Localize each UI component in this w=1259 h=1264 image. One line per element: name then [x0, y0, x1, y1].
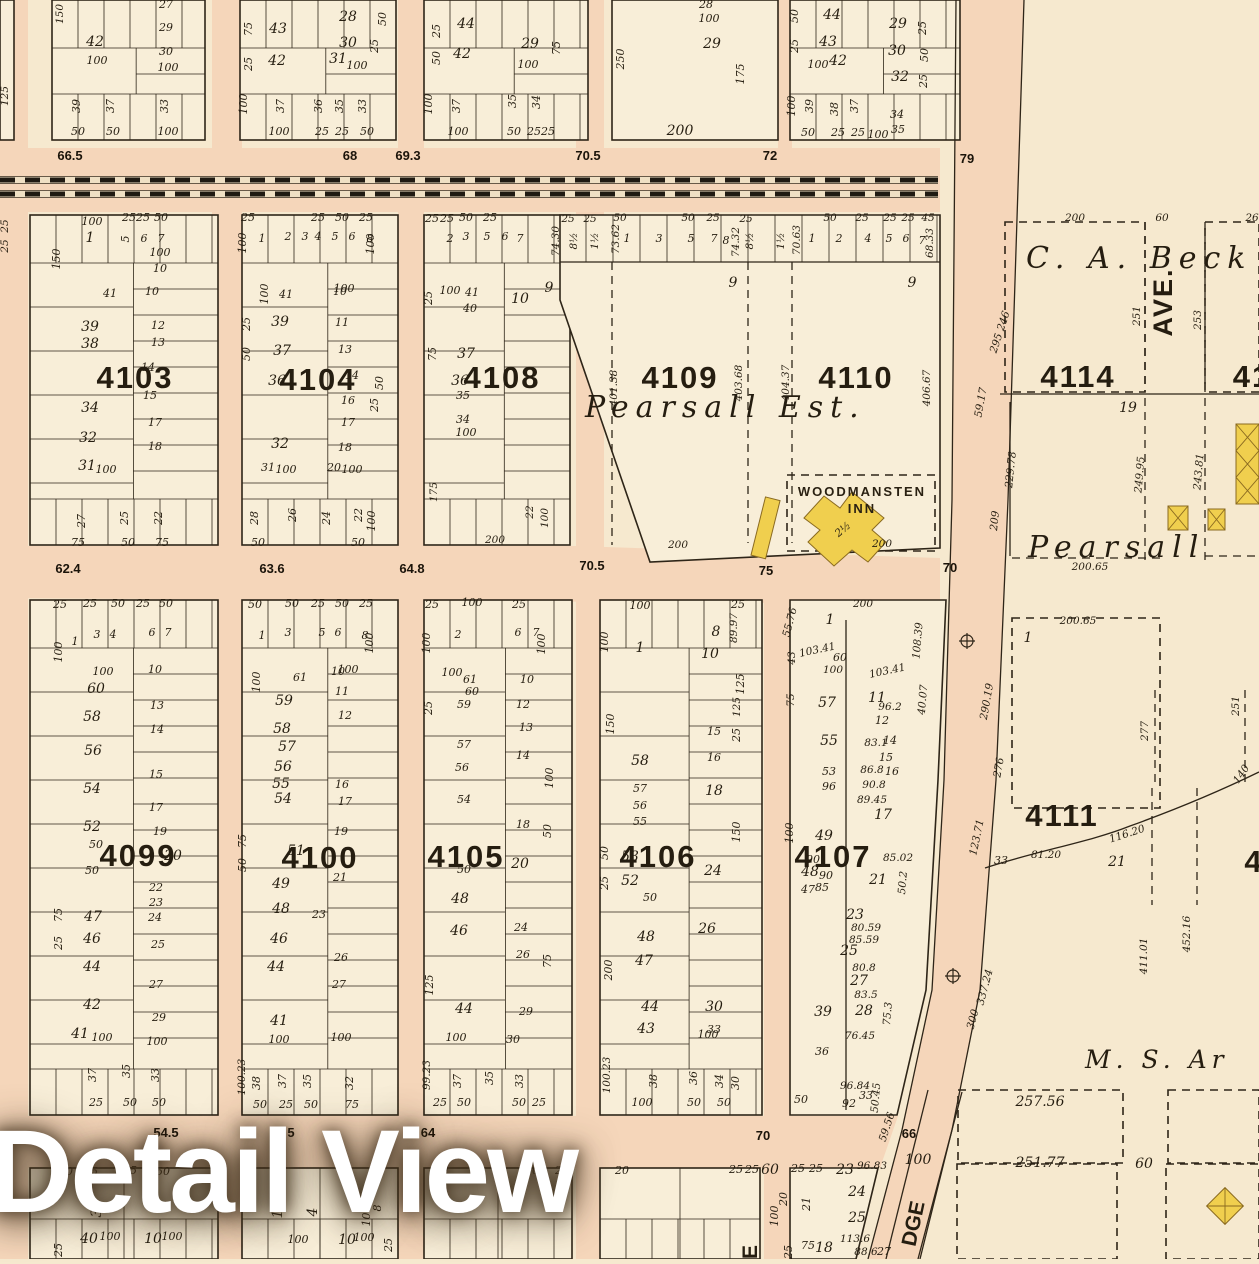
lot-number-label: 28 [248, 511, 261, 526]
lot-number-label: 25 [150, 938, 165, 951]
lot-number-label: 20 [326, 461, 341, 474]
lot-number-label: 16 [341, 394, 355, 407]
lot-number-label: 50 [111, 597, 125, 610]
lot-number-label: 50 [71, 125, 85, 138]
lot-number-label: 42 [267, 53, 286, 69]
lot-number-label: 23 [148, 896, 163, 909]
lot-number-label: 36 [312, 99, 325, 113]
lot-number-label: 31 [329, 51, 347, 67]
lot-number-label: 150 [50, 249, 63, 270]
measurement-label: 83.5 [854, 989, 878, 1001]
measurement-label: 50 [681, 212, 695, 224]
lot-number-label: 27 [849, 973, 868, 989]
street-measure-label: 69.3 [395, 148, 420, 163]
lot-number-label: 25 [782, 1245, 795, 1259]
measurement-label: 43 [786, 651, 798, 666]
lot-number-label: 29 [520, 36, 539, 52]
lot-number-label: 28 [338, 9, 357, 25]
lot-number-label: 38 [250, 1076, 263, 1090]
street-measure-label: 66 [902, 1126, 916, 1141]
lot-number-label: 55 [272, 776, 290, 792]
lot-number-label: 25 [242, 57, 255, 72]
lot-number-label: 36 [815, 1045, 829, 1058]
measurement-label: 200.65 [1059, 615, 1097, 627]
lot-number-label: 50 [788, 9, 801, 23]
lot-number-label: 100 [269, 125, 290, 138]
lot-number-label: 100 [448, 125, 469, 138]
lot-number-label: 25 [424, 212, 439, 225]
lot-number-label: 60 [833, 651, 847, 664]
measurement-label: 411.01 [1138, 938, 1150, 976]
lot-number-label: 16 [707, 751, 721, 764]
measurement-label: 8½ [568, 233, 580, 250]
lot-number-label: 50 [459, 211, 473, 224]
lot-number-label: 40 [79, 1231, 98, 1247]
lot-number-label: 54 [274, 791, 292, 807]
lot-number-label: 3 [89, 1208, 105, 1217]
lot-number-label: 5 [688, 232, 695, 245]
lot-number-label: 100 [162, 1230, 183, 1243]
lot-number-label: 37 [86, 1068, 99, 1082]
lot-number-label: 30 [506, 1033, 520, 1046]
lot-number-label: 1 [1024, 630, 1033, 646]
lot-number-label: 44 [82, 959, 101, 975]
lot-number-label: 57 [633, 782, 647, 795]
lot-number-label: 75 [155, 536, 169, 549]
block-number-label: 4114 [1040, 359, 1115, 394]
lot-number-label: 44 [640, 999, 659, 1015]
lot-number-label: 27 [876, 1245, 891, 1258]
lot-number-label: 25 [482, 211, 497, 224]
street-measure-label: 70 [943, 560, 957, 575]
lot-number-label: 10 [145, 285, 159, 298]
lot-number-label: 48 [450, 891, 469, 907]
lot-number-label: 33 [356, 99, 369, 113]
lot-number-label: 49 [814, 828, 833, 844]
lot-number-label: 4 [314, 230, 322, 243]
lot-number-label: 7 [517, 232, 524, 245]
lot-number-label: 32 [271, 436, 289, 452]
lot-number-label: 50 [801, 126, 815, 139]
measurement-label: 406.67 [921, 369, 933, 407]
lot-number-label: 50 [123, 1096, 137, 1109]
measurement-label: 200 [871, 538, 892, 550]
lot-number-label: 100 [422, 94, 435, 115]
lot-number-label: 100 [334, 282, 355, 295]
lot-number-label: 56 [633, 799, 647, 812]
lot-number-label: 60 [431, 1161, 449, 1177]
lot-number-label: 25 [839, 943, 858, 959]
lot-number-label: 38 [647, 1074, 660, 1088]
lot-number-label: 36 [451, 373, 469, 389]
lot-number-label: 10 [153, 262, 167, 275]
lot-number-label: 3 [463, 230, 470, 243]
street-measure-label: 70 [756, 1128, 770, 1143]
lot-number-label: 10 [701, 646, 719, 662]
lot-number-label: 100 [632, 1096, 653, 1109]
lot-number-label: 25 [52, 1243, 65, 1258]
avenue-name-label: AVE. [1148, 267, 1178, 336]
lot-number-label: 34 [81, 400, 99, 416]
lot-number-label: 100 [87, 54, 108, 67]
lot-number-label: 35 [506, 94, 519, 108]
measurement-label: 8½ [744, 233, 756, 250]
lot-number-label: 30 [339, 35, 357, 51]
measurement-label: 96.2 [878, 701, 902, 713]
lot-number-label: 50 [285, 597, 299, 610]
lot-number-label: 75 [801, 1239, 815, 1252]
lot-number-label: 37 [276, 1074, 289, 1088]
lot-number-label: 17 [148, 416, 162, 429]
measurement-label: 25 [900, 212, 915, 224]
measurement-label: 403.68 [733, 364, 745, 402]
lot-number-label: 47 [800, 883, 815, 896]
lot-number-label: 18 [815, 1240, 833, 1256]
lot-number-label: 85 [815, 881, 829, 894]
lot-number-label: 100 [783, 823, 796, 844]
lot-number-label: 47 [83, 909, 102, 925]
lot-number-label: 10 [520, 673, 534, 686]
street-measure-label: 75 [759, 563, 773, 578]
lot-number-label: 50 [376, 12, 389, 26]
lot-number-label: 61 [293, 671, 307, 684]
lot-number-label: 50 [507, 125, 521, 138]
lot-number-label: 42 [452, 46, 471, 62]
lot-number-label: 33 [158, 99, 171, 113]
lot-number-label: 100 [158, 125, 179, 138]
lot-number-label: 50 [525, 1164, 539, 1177]
lot-number-label: 25 [334, 125, 349, 138]
estate-name-label: C. A. Beck [1026, 241, 1252, 276]
measurement-label: 81.20 [1031, 849, 1061, 861]
street-measure-label: 66.5 [57, 148, 82, 163]
lot-number-label: 75 [242, 22, 255, 36]
lot-number-label: 100 [147, 1035, 168, 1048]
lot-number-label: 5 [886, 232, 893, 245]
lot-number-label: 15 [879, 751, 893, 764]
lot-number-label: 20 [614, 1164, 629, 1177]
lot-number-label: 35 [891, 123, 905, 136]
measurement-label: 68.33 [924, 228, 936, 258]
lot-number-label: 48 [636, 929, 655, 945]
lot-number-label: 12 [875, 714, 889, 727]
lot-number-label: 23 [835, 1162, 854, 1178]
lot-number-label: 13 [338, 343, 352, 356]
lot-number-label: 100 [100, 1230, 121, 1243]
lot-number-label: 15 [707, 725, 721, 738]
lot-number-label: 250 [614, 49, 627, 71]
measurement-label: 25 [854, 212, 869, 224]
lot-number-label: 35 [301, 1074, 314, 1088]
lot-number-label: 17 [149, 801, 163, 814]
measurement-label: 88.6 [854, 1246, 878, 1258]
lot-number-label: 32 [891, 69, 909, 85]
measurement-label: 85.02 [883, 852, 913, 864]
lot-number-label: 8 [712, 624, 721, 640]
lot-number-label: 100 [808, 58, 829, 71]
street-shape [0, 0, 28, 1259]
lot-number-label: 25 [598, 876, 611, 891]
street-measure-label: 70.5 [579, 558, 604, 573]
lot-number-label: 175 [734, 64, 747, 85]
lot-number-label: 22 [152, 511, 165, 526]
lot-number-label: 25 [730, 598, 745, 611]
lot-number-label: 22 [352, 508, 365, 523]
lot-number-label: 18 [148, 440, 162, 453]
lot-number-label: 25 [808, 1162, 823, 1175]
lot-number-label: 100 [338, 663, 359, 676]
lot-number-label: 58 [631, 753, 649, 769]
lot-number-label: 41 [464, 286, 479, 299]
lot-number-label: 42 [828, 53, 847, 69]
lot-number-label: 14 [150, 723, 164, 736]
street-measure-label: 68 [343, 148, 357, 163]
lot-number-label: 125 [734, 674, 747, 695]
lot-number-label: 43 [268, 21, 287, 37]
street-measure-label: 63.6 [259, 561, 284, 576]
lot-number-label: 1 [72, 635, 79, 648]
lot-number-label: 11 [335, 685, 349, 698]
lot-number-label: 25 [916, 21, 929, 36]
measurement-label: 74.32 [730, 227, 742, 257]
lot-number-label: 36 [687, 1071, 700, 1085]
lot-number-label: 100 [518, 58, 539, 71]
lot-number-label: 50 [457, 863, 471, 876]
lot-number-label: 53 [822, 765, 836, 778]
lot-number-label: 41 [278, 288, 293, 301]
lot-number-label: 51 [287, 843, 305, 859]
lot-number-label: 60 [87, 681, 105, 697]
lot-number-label: 25 [121, 211, 136, 224]
lot-number-label: 50 [248, 598, 262, 611]
lot-number-label: 25 [358, 211, 373, 224]
lot-number-label: 27 [75, 514, 88, 529]
lot-number-label: 100 [236, 233, 249, 254]
lot-number-label: 10 [144, 1231, 162, 1247]
lot-number-label: 75 [345, 1098, 359, 1111]
lot-number-label: 23 [311, 908, 326, 921]
lot-number-label: 50 [351, 536, 365, 549]
lot-number-label: 25 [135, 211, 150, 224]
lot-number-label: 25 [240, 211, 255, 224]
street-name-letter: N [0, 1174, 15, 1189]
lot-number-label: 18 [516, 818, 530, 831]
street-name-letter: E [739, 1245, 762, 1259]
lot-number-label: 18 [705, 783, 723, 799]
lot-number-label: 100 [440, 284, 461, 297]
lot-number-label: 29 [151, 1011, 166, 1024]
measurement-label: 50.2 [896, 870, 910, 895]
atlas-map: 66.56869.370.5727962.463.664.870.5757054… [0, 0, 1259, 1259]
lot-number-label: 100 [269, 1033, 290, 1046]
lot-number-label: 25 [88, 1096, 103, 1109]
lot-number-label: 14 [141, 361, 155, 374]
lot-number-label: 4 [109, 628, 117, 641]
lot-number-label: 25 [744, 1163, 759, 1176]
street-measure-label: 64.8 [399, 561, 424, 576]
lot-number-label: 50 [85, 864, 99, 877]
lot-number-label: 50 [717, 1096, 731, 1109]
lot-number-label: 100 [150, 246, 171, 259]
lot-number-label: 25 [540, 125, 555, 138]
measurement-label: 25 [582, 213, 597, 225]
lot-number-label: 50 [541, 824, 554, 838]
lot-number-label: 25 [368, 398, 381, 413]
lot-number-label: 50 [251, 536, 265, 549]
measurement-label: 76.45 [845, 1030, 875, 1042]
lot-number-label: 37 [274, 99, 287, 113]
lot-number-label: 5 [119, 236, 132, 243]
lot-number-label: 50 [512, 1096, 526, 1109]
measurement-label: 83.1 [864, 737, 887, 749]
lot-number-label: 42 [82, 997, 101, 1013]
measurement-label: 80.59 [851, 922, 881, 934]
lot-number-label: 32 [343, 1076, 356, 1090]
lot-number-label: 34 [530, 95, 543, 109]
lot-number-label: 24 [513, 921, 528, 934]
lot-number-label: 25 [358, 597, 373, 610]
lot-number-label: 55 [633, 815, 647, 828]
lot-number-label: 31 [261, 461, 275, 474]
lot-number-label: 25 [82, 597, 97, 610]
lot-number-label: 8 [371, 1205, 384, 1212]
lot-number-label: 7 [158, 232, 165, 245]
lot-number-label: 30 [159, 45, 173, 58]
lot-number-label: 59 [457, 698, 471, 711]
lot-number-label: 25 [422, 701, 435, 716]
lot-number-label: 25 [439, 212, 454, 225]
lot-number-label: 3 [302, 230, 309, 243]
measurement-label: 125 [0, 86, 11, 106]
lot-number-label: 5 [484, 230, 491, 243]
lot-number-label: 125 [423, 975, 436, 996]
lot-number-label: 24 [847, 1184, 866, 1200]
lot-number-label: 100 [699, 12, 720, 25]
lot-number-label: 25 [554, 1164, 569, 1177]
lot-number-label: 25 [135, 597, 150, 610]
lot-number-label: 100 [446, 1031, 467, 1044]
street-measure-label: 70.5 [575, 148, 600, 163]
lot-number-label: 41 [102, 287, 117, 300]
measurement-label: 74.30 [550, 226, 562, 256]
measurement-label: 251 [1131, 306, 1143, 327]
measurement-label: 251 [1230, 696, 1242, 717]
lot-number-label: 2 [446, 232, 454, 245]
lot-number-label: 19 [334, 825, 348, 838]
lot-number-label: 34 [890, 108, 904, 121]
street-measure-label: 62.4 [55, 561, 81, 576]
lot-number-label: 26 [515, 948, 530, 961]
lot-number-label: 100 [288, 1233, 309, 1246]
lot-number-label: 50 [154, 211, 168, 224]
lot-number-label: 25 [240, 317, 253, 332]
lot-number-label: 100 [535, 634, 548, 655]
lot-number-label: 100 [456, 426, 477, 439]
lot-number-label: 31 [78, 458, 96, 474]
lot-number-label: 37 [273, 343, 291, 359]
lot-number-label: 50 [373, 376, 386, 390]
lot-number-label: 58 [273, 721, 291, 737]
street-measure-label: 72 [763, 148, 777, 163]
lot-number-label: 100 [905, 1152, 932, 1168]
lot-number-label: 24 [703, 863, 722, 879]
lot-number-label: 43 [636, 1021, 655, 1037]
lot-number-label: 75 [236, 834, 249, 848]
lot-number-label: 25 [310, 597, 325, 610]
lot-number-label: 56 [84, 743, 102, 759]
measurement-label: 90.8 [862, 779, 886, 791]
lot-number-label: 4 [864, 232, 872, 245]
lot-number-label: 34 [456, 413, 470, 426]
lot-number-label: 12 [151, 319, 165, 332]
lot-number-label: 50 [159, 597, 173, 610]
measurement-label: 209 [988, 510, 1002, 532]
lot-number-label: 1 [826, 612, 835, 628]
lot-number-label: 19 [153, 825, 167, 838]
lot-number-label: 12 [516, 698, 530, 711]
lot-number-label: 50 [457, 1096, 471, 1109]
measurement-label: 96.83 [857, 1160, 887, 1172]
lot-number-label: 25 [310, 211, 325, 224]
lot-number-label: 17 [874, 807, 892, 823]
lot-number-label: 53 [621, 849, 639, 865]
lot-number-label: 60 [761, 1162, 779, 1178]
lot-number-label: 58 [83, 709, 101, 725]
lot-number-label: 37 [848, 99, 861, 113]
measurement-label: 200 [667, 539, 688, 551]
lot-number-label: 49 [271, 876, 290, 892]
lot-number-label: 6 [141, 232, 148, 245]
measurement-label: 25 [0, 239, 11, 254]
lot-number-label: 100 [768, 1206, 781, 1227]
lot-number-label: 43 [818, 34, 837, 50]
lot-number-label: 50 [918, 48, 931, 62]
lot-number-label: 25 [830, 126, 845, 139]
lot-number-label: 50 [240, 347, 253, 361]
lot-number-label: 25 [917, 74, 930, 89]
lot-number-label: 25 [847, 1210, 866, 1226]
measurement-label: 150 [54, 4, 66, 24]
street-measure-label: 79 [960, 151, 974, 166]
lot-number-label: 55 [820, 733, 838, 749]
lot-number-label: 100 [52, 642, 65, 663]
lot-number-label: 37 [457, 346, 475, 362]
lot-number-label: 50 [121, 536, 135, 549]
lot-number-label: 50 [253, 1098, 267, 1111]
lot-number-label: 1 [809, 232, 816, 245]
lot-number-label: 29 [888, 16, 907, 32]
measurement-label: 89.97 [728, 613, 740, 643]
lot-number-label: 11 [335, 316, 349, 329]
measurement-label: 100 [823, 664, 843, 676]
lot-number-label: 17 [341, 416, 355, 429]
lot-number-label: 6 [335, 626, 342, 639]
street-measure-label: 64 [421, 1125, 436, 1140]
lot-number-label: 36 [268, 373, 286, 389]
lot-number-label: 21 [868, 872, 887, 888]
lot-number-label: 33 [513, 1074, 526, 1088]
lot-number-label: 100 [93, 665, 114, 678]
lot-number-label: 37 [451, 1074, 464, 1088]
measurement-label: 200 [484, 534, 505, 546]
lot-number-label: 18 [338, 441, 352, 454]
lot-number-label: 9 [545, 280, 554, 296]
lot-number-label: 29 [702, 36, 721, 52]
lot-number-label: 21 [800, 1197, 813, 1212]
lot-number-label: 6 [349, 230, 356, 243]
lot-number-label: 25 [382, 1238, 395, 1253]
measurement-label: 22 [524, 505, 536, 520]
